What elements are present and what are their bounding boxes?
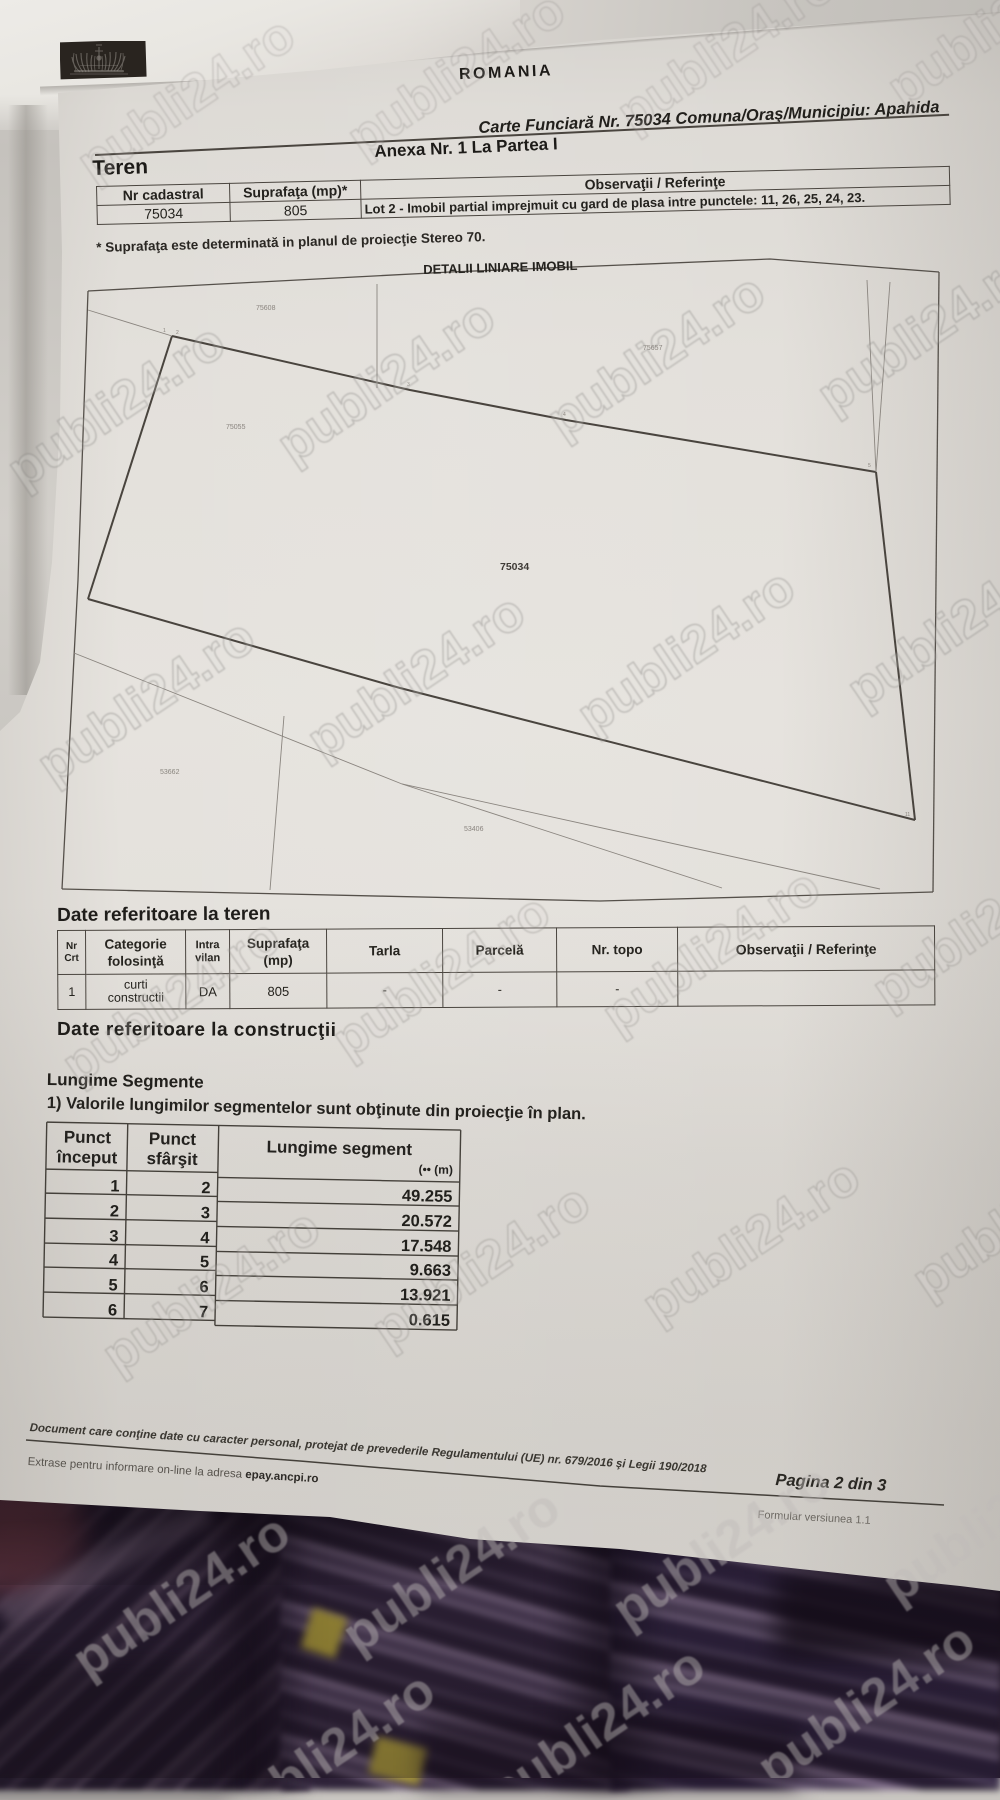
- svg-text:3: 3: [407, 382, 410, 388]
- svg-text:53406: 53406: [464, 826, 484, 833]
- svg-text:3: 3: [201, 1204, 211, 1222]
- svg-text:Lungime segment: Lungime segment: [266, 1137, 412, 1159]
- svg-text:4: 4: [109, 1251, 119, 1269]
- svg-text:4: 4: [200, 1229, 210, 1247]
- svg-text:17.548: 17.548: [401, 1237, 452, 1256]
- svg-text:sfârşit: sfârşit: [146, 1149, 198, 1169]
- svg-text:Punct: Punct: [64, 1127, 112, 1147]
- svg-text:53662: 53662: [160, 769, 180, 776]
- svg-text:75657: 75657: [643, 345, 663, 352]
- svg-text:1: 1: [110, 1177, 120, 1195]
- svg-text:2: 2: [176, 330, 179, 336]
- svg-text:75608: 75608: [256, 305, 276, 312]
- svg-text:5: 5: [200, 1253, 210, 1271]
- svg-text:75034: 75034: [500, 561, 529, 573]
- svg-text:Punct: Punct: [149, 1129, 197, 1149]
- svg-text:13.921: 13.921: [400, 1286, 451, 1305]
- svg-text:49.255: 49.255: [402, 1187, 453, 1206]
- svg-text:2: 2: [110, 1202, 120, 1220]
- svg-text:1: 1: [163, 328, 166, 334]
- svg-text:5: 5: [868, 463, 871, 469]
- svg-text:7: 7: [199, 1303, 209, 1321]
- svg-text:6: 6: [199, 1278, 209, 1296]
- svg-text:0.615: 0.615: [409, 1311, 451, 1330]
- svg-text:5: 5: [108, 1276, 118, 1294]
- svg-text:75055: 75055: [226, 424, 246, 431]
- svg-text:11: 11: [905, 812, 910, 818]
- svg-text:început: început: [56, 1147, 118, 1167]
- svg-text:20.572: 20.572: [401, 1212, 452, 1231]
- svg-text:(•• (m): (•• (m): [418, 1162, 453, 1177]
- svg-text:3: 3: [109, 1227, 119, 1245]
- svg-text:9.663: 9.663: [410, 1261, 452, 1280]
- svg-text:2: 2: [201, 1179, 211, 1197]
- svg-text:6: 6: [108, 1301, 118, 1319]
- svg-text:4: 4: [563, 412, 566, 418]
